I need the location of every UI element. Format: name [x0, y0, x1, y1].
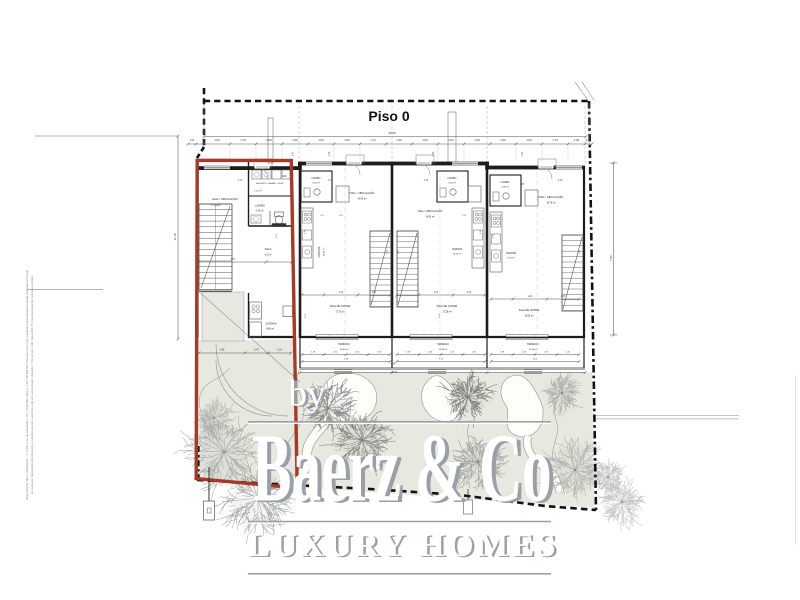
- svg-text:2.43 m²: 2.43 m²: [256, 210, 264, 213]
- svg-text:5.55 m²: 5.55 m²: [507, 257, 515, 260]
- svg-text:1.00: 1.00: [422, 138, 428, 142]
- svg-text:COZINHA: COZINHA: [506, 252, 517, 255]
- svg-text:SALA: SALA: [265, 247, 272, 251]
- svg-text:ARRUMOS / LAVAND. / DESP.: ARRUMOS / LAVAND. / DESP.: [256, 182, 284, 185]
- svg-text:2.44: 2.44: [328, 180, 333, 182]
- svg-text:10.44 m²: 10.44 m²: [439, 348, 448, 351]
- svg-text:HALL / CIRCULAÇÃO: HALL / CIRCULAÇÃO: [350, 192, 375, 195]
- svg-text:2.68: 2.68: [220, 349, 225, 352]
- svg-text:8.68 m²: 8.68 m²: [266, 328, 274, 331]
- svg-text:1.73: 1.73: [552, 138, 558, 142]
- svg-text:HALL / CIRCULAÇÃO: HALL / CIRCULAÇÃO: [418, 210, 443, 213]
- svg-text:25.09: 25.09: [389, 131, 396, 135]
- svg-text:3.06 m²: 3.06 m²: [448, 182, 456, 185]
- svg-text:3.06 m²: 3.06 m²: [501, 186, 509, 189]
- svg-text:LAVABO: LAVABO: [448, 177, 457, 180]
- svg-text:HALL / CIRCULAÇÃO: HALL / CIRCULAÇÃO: [539, 196, 564, 199]
- svg-text:SALA DE JANTAR: SALA DE JANTAR: [330, 305, 351, 308]
- svg-text:1.00: 1.00: [448, 138, 454, 142]
- svg-text:2.48: 2.48: [558, 180, 563, 182]
- svg-text:2.03: 2.03: [561, 296, 566, 298]
- svg-text:2.57: 2.57: [231, 258, 236, 261]
- svg-text:3.06 m²: 3.06 m²: [312, 182, 320, 185]
- svg-text:2.40: 2.40: [293, 151, 295, 156]
- svg-text:1.00: 1.00: [344, 138, 350, 142]
- svg-text:2.44: 2.44: [424, 180, 429, 182]
- svg-text:by: by: [289, 374, 327, 415]
- svg-text:22.18: 22.18: [391, 372, 397, 374]
- svg-text:TERRAÇO: TERRAÇO: [437, 343, 449, 346]
- svg-text:1.44: 1.44: [528, 296, 533, 298]
- svg-text:0.8: 0.8: [190, 138, 194, 142]
- svg-text:1.18: 1.18: [277, 349, 282, 352]
- svg-text:0.97: 0.97: [254, 349, 259, 352]
- svg-text:17.75 m²: 17.75 m²: [335, 311, 344, 314]
- svg-text:COZINHA: COZINHA: [318, 246, 321, 257]
- svg-text:1.00: 1.00: [500, 138, 506, 142]
- svg-text:Baerz & Co: Baerz & Co: [252, 413, 552, 522]
- svg-text:1.70: 1.70: [240, 138, 246, 142]
- svg-text:5.95: 5.95: [609, 255, 613, 261]
- svg-text:14.70 m²: 14.70 m²: [546, 202, 555, 205]
- svg-text:1.44: 1.44: [434, 292, 439, 294]
- svg-text:1.00: 1.00: [292, 138, 298, 142]
- svg-text:SALA DE JANTAR: SALA DE JANTAR: [437, 305, 458, 308]
- svg-text:1.25 m²: 1.25 m²: [254, 190, 262, 193]
- svg-text:1.00: 1.00: [266, 138, 272, 142]
- svg-text:17.90 m²: 17.90 m²: [211, 204, 221, 207]
- svg-text:LAVABO: LAVABO: [255, 205, 265, 208]
- svg-text:13.90 m²: 13.90 m²: [340, 348, 349, 351]
- svg-text:2.03: 2.03: [372, 292, 377, 294]
- svg-text:Piso 0: Piso 0: [368, 108, 409, 124]
- svg-text:LAVABO: LAVABO: [501, 181, 510, 184]
- svg-text:10.00 m²: 10.00 m²: [453, 253, 462, 256]
- svg-text:6.2 m²: 6.2 m²: [265, 254, 272, 257]
- svg-text:COZINHA: COZINHA: [452, 248, 463, 251]
- svg-text:11.65 m²: 11.65 m²: [529, 348, 538, 351]
- svg-text:11.38: 11.38: [173, 233, 177, 241]
- svg-text:14.00 m²: 14.00 m²: [425, 216, 434, 219]
- svg-text:1.00: 1.00: [574, 138, 580, 142]
- svg-text:1.00: 1.00: [396, 138, 402, 142]
- svg-text:2.03: 2.03: [467, 292, 472, 294]
- svg-text:2.05: 2.05: [520, 184, 525, 186]
- svg-text:0.99: 0.99: [586, 138, 592, 142]
- svg-text:14.00 m²: 14.00 m²: [357, 198, 366, 201]
- svg-text:Requerimento: Tipo n° 08 paine: Requerimento: Tipo n° 08 painel B — 1° F…: [25, 270, 29, 500]
- svg-text:da execução: documentos de int: da execução: documentos de intervenção e…: [30, 276, 34, 494]
- svg-text:1.72: 1.72: [370, 138, 376, 142]
- svg-text:240: 240: [283, 175, 288, 178]
- svg-text:17.25 m²: 17.25 m²: [442, 311, 451, 314]
- svg-text:COZINHA: COZINHA: [265, 323, 277, 326]
- svg-text:18.65 m²: 18.65 m²: [524, 315, 533, 318]
- svg-text:2.70: 2.70: [238, 180, 243, 182]
- svg-text:TERRAÇO: TERRAÇO: [527, 343, 539, 346]
- svg-text:1.00: 1.00: [474, 138, 480, 142]
- svg-text:9.38: 9.38: [391, 364, 396, 366]
- svg-text:0.42: 0.42: [329, 151, 331, 156]
- svg-text:1.00: 1.00: [318, 138, 324, 142]
- svg-text:TERRAÇO: TERRAÇO: [338, 343, 350, 346]
- svg-text:LAVABO: LAVABO: [312, 177, 321, 180]
- svg-text:1.44: 1.44: [339, 292, 344, 294]
- svg-text:SALA DE JANTAR: SALA DE JANTAR: [519, 309, 540, 312]
- svg-text:10.65 m²: 10.65 m²: [323, 247, 326, 256]
- svg-text:1.00: 1.00: [214, 138, 220, 142]
- svg-text:1.00: 1.00: [526, 138, 532, 142]
- svg-text:2.40: 2.40: [522, 151, 524, 156]
